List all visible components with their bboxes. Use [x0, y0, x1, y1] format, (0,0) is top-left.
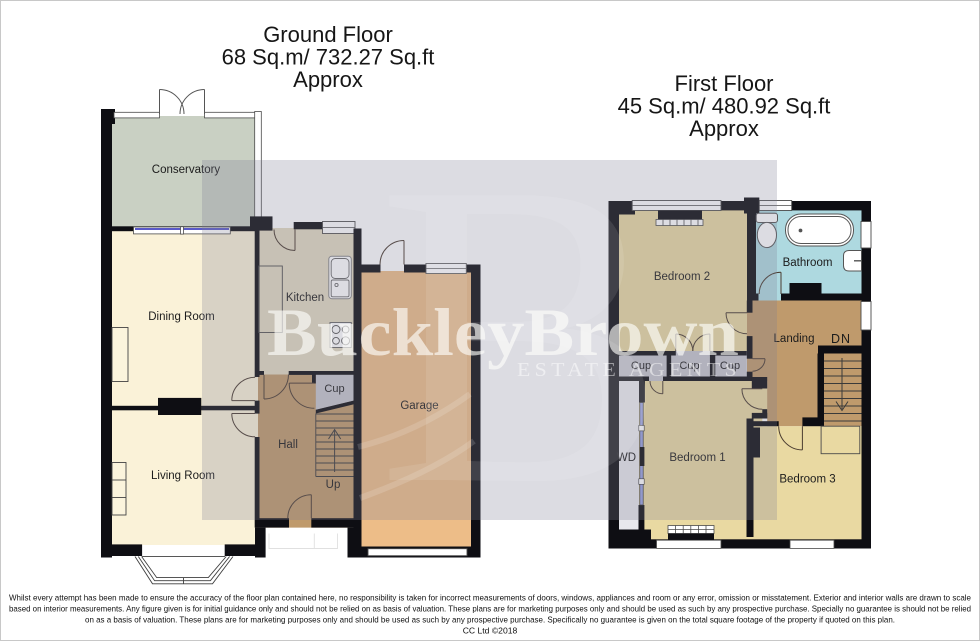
- svg-text:68 Sq.m/ 732.27 Sq.ft: 68 Sq.m/ 732.27 Sq.ft: [222, 45, 435, 70]
- svg-text:DN: DN: [831, 332, 851, 346]
- svg-text:ESTATE AGENTS: ESTATE AGENTS: [517, 359, 741, 381]
- svg-text:on as a basis of valuation. Th: on as a basis of valuation. These plans …: [85, 615, 895, 625]
- svg-text:Approx: Approx: [293, 67, 363, 92]
- svg-text:Bathroom: Bathroom: [783, 257, 833, 269]
- svg-text:Bedroom 3: Bedroom 3: [779, 474, 835, 486]
- svg-text:Landing: Landing: [774, 333, 815, 345]
- svg-text:Whilst every attempt has been: Whilst every attempt has been made to en…: [9, 593, 971, 603]
- svg-text:Ground Floor: Ground Floor: [263, 22, 393, 47]
- svg-text:CC Ltd ©2018: CC Ltd ©2018: [463, 626, 518, 636]
- svg-text:Approx: Approx: [689, 116, 759, 141]
- svg-text:First Floor: First Floor: [675, 71, 774, 96]
- svg-text:based on interior measurements: based on interior measurements. Any figu…: [9, 604, 971, 614]
